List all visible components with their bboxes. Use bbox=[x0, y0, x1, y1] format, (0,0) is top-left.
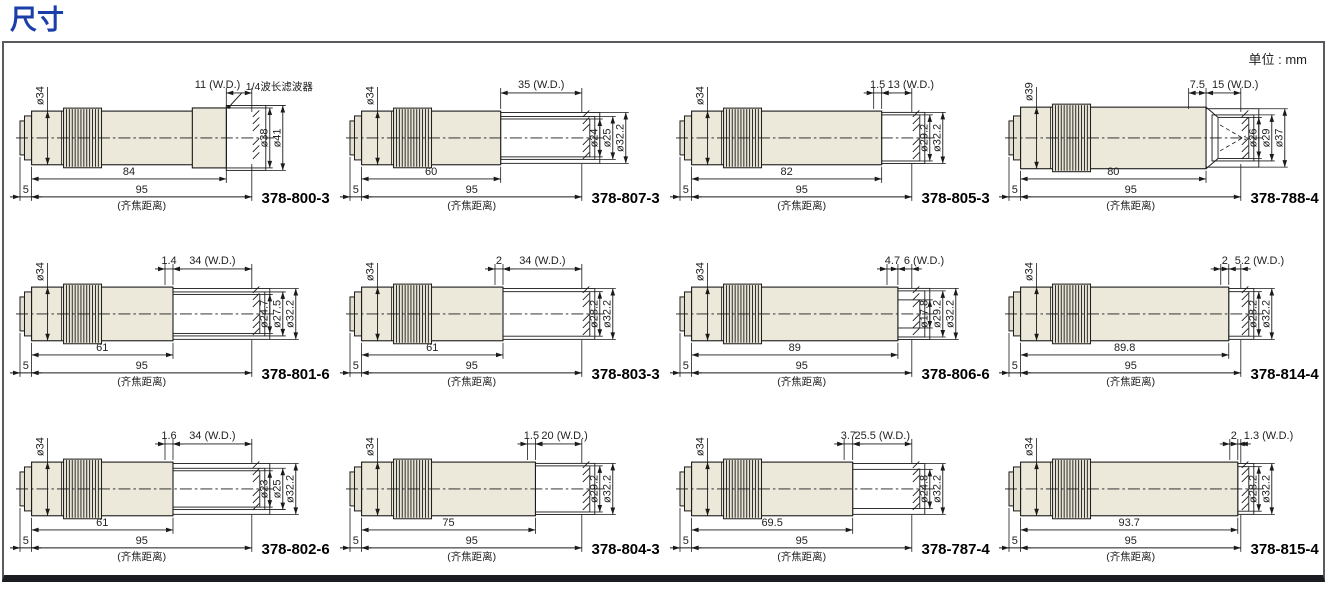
model-number: 378-806-6 bbox=[921, 365, 989, 382]
parfocal-note: (齐焦距离) bbox=[117, 550, 166, 563]
diameter-label: ø32.2 bbox=[614, 124, 626, 152]
parfocal-note: (齐焦距离) bbox=[777, 374, 826, 387]
wd-dim-label: 5.2 (W.D.) bbox=[1235, 255, 1284, 267]
objective-drawing: 1.3 (W.D.)2ø34ø28.2ø32.293.7955(齐焦距离)378… bbox=[993, 403, 1323, 579]
flange-label: 5 bbox=[1012, 359, 1018, 371]
diameter-label: ø32.2 bbox=[601, 299, 613, 327]
parfocal-label: 95 bbox=[136, 359, 148, 371]
model-number: 378-807-3 bbox=[591, 190, 659, 207]
body-length-label: 75 bbox=[442, 517, 454, 529]
objective-drawing-cell: 34 (W.D.)1.6ø34ø23ø25ø32.261955(齐焦距离)378… bbox=[4, 403, 334, 579]
objective-drawing-cell: 1.3 (W.D.)2ø34ø28.2ø32.293.7955(齐焦距离)378… bbox=[993, 403, 1323, 579]
objective-drawing: 25.5 (W.D.)3.7ø34ø24.8ø32.269.5955(齐焦距离)… bbox=[664, 403, 994, 579]
wd-dim-label: 13 (W.D.) bbox=[887, 79, 933, 91]
parfocal-note: (齐焦距离) bbox=[777, 199, 826, 212]
diameter-label: ø32.2 bbox=[931, 475, 943, 503]
drawings-grid: 11 (W.D.)1/4波长滤波器ø34ø38ø4184955(齐焦距离)378… bbox=[4, 43, 1323, 580]
diameter-label: ø32.2 bbox=[1261, 299, 1273, 327]
left-diameter-label: ø34 bbox=[364, 86, 376, 105]
parfocal-label: 95 bbox=[795, 535, 807, 547]
flange-label: 5 bbox=[682, 359, 688, 371]
objective-drawing-cell: 25.5 (W.D.)3.7ø34ø24.8ø32.269.5955(齐焦距离)… bbox=[664, 403, 994, 579]
objective-drawing: 13 (W.D.)1.5ø34ø29.2ø32.282955(齐焦距离)378-… bbox=[664, 52, 994, 228]
objective-drawing-cell: 35 (W.D.)ø34ø24ø25ø32.260955(齐焦距离)378-80… bbox=[334, 52, 664, 228]
diameter-label: ø24.7 bbox=[258, 299, 270, 327]
model-number: 378-800-3 bbox=[261, 190, 329, 207]
wd-dim-label: 34 (W.D.) bbox=[189, 430, 235, 442]
wd-dim-label: 6 (W.D.) bbox=[903, 255, 943, 267]
body-length-label: 80 bbox=[1107, 166, 1119, 178]
model-number: 378-787-4 bbox=[921, 541, 990, 558]
flange-label: 5 bbox=[682, 535, 688, 547]
offset-dim-label: 2 bbox=[496, 255, 502, 267]
parfocal-note: (齐焦距离) bbox=[117, 374, 166, 387]
left-diameter-label: ø34 bbox=[35, 86, 47, 105]
body-length-label: 89.8 bbox=[1114, 341, 1135, 353]
diameter-label: ø29.2 bbox=[931, 299, 943, 327]
objective-drawing-cell: 15 (W.D.)7.5ø39ø26ø29ø3780955(齐焦距离)378-7… bbox=[993, 52, 1323, 228]
body-length-label: 69.5 bbox=[761, 517, 782, 529]
model-number: 378-803-3 bbox=[591, 365, 659, 382]
objective-drawing: 11 (W.D.)1/4波长滤波器ø34ø38ø4184955(齐焦距离)378… bbox=[4, 52, 334, 228]
diameter-label: ø32.2 bbox=[284, 475, 296, 503]
diameter-label: ø29.2 bbox=[588, 475, 600, 503]
offset-dim-label: 1.5 bbox=[524, 430, 539, 442]
left-diameter-label: ø34 bbox=[694, 86, 706, 105]
objective-drawing-cell: 11 (W.D.)1/4波长滤波器ø34ø38ø4184955(齐焦距离)378… bbox=[4, 52, 334, 228]
parfocal-label: 95 bbox=[465, 184, 477, 196]
parfocal-note: (齐焦距离) bbox=[1106, 374, 1155, 387]
diameter-label: ø32.2 bbox=[944, 299, 956, 327]
body-length-label: 61 bbox=[96, 517, 108, 529]
objective-drawing: 6 (W.D.)4.7ø34ø17.8ø29.2ø32.289955(齐焦距离)… bbox=[664, 228, 994, 404]
parfocal-note: (齐焦距离) bbox=[777, 550, 826, 563]
diameter-label: ø32.2 bbox=[284, 299, 296, 327]
parfocal-note: (齐焦距离) bbox=[1106, 550, 1155, 563]
left-diameter-label: ø34 bbox=[35, 262, 47, 281]
model-number: 378-805-3 bbox=[921, 190, 989, 207]
objective-drawing-cell: 34 (W.D.)2ø34ø28.2ø32.261955(齐焦距离)378-80… bbox=[334, 228, 664, 404]
parfocal-label: 95 bbox=[795, 184, 807, 196]
parfocal-note: (齐焦距离) bbox=[447, 550, 496, 563]
wd-dim-label: 34 (W.D.) bbox=[519, 255, 565, 267]
flange-label: 5 bbox=[23, 359, 29, 371]
offset-dim-label: 7.5 bbox=[1190, 79, 1205, 91]
parfocal-label: 95 bbox=[136, 535, 148, 547]
dimensions-panel: 单位 : mm 11 (W.D.)1/4波长滤波器ø34ø38ø4184955(… bbox=[2, 41, 1325, 582]
diameter-label: ø29.2 bbox=[918, 124, 930, 152]
objective-drawing: 15 (W.D.)7.5ø39ø26ø29ø3780955(齐焦距离)378-7… bbox=[993, 52, 1323, 228]
parfocal-note: (齐焦距离) bbox=[447, 199, 496, 212]
wd-dim-label: 1.3 (W.D.) bbox=[1244, 430, 1293, 442]
body-length-label: 61 bbox=[426, 341, 438, 353]
quarter-wave-filter-label: 1/4波长滤波器 bbox=[246, 80, 314, 93]
diameter-label: ø28.2 bbox=[1248, 299, 1260, 327]
objective-drawing-cell: 5.2 (W.D.)2ø34ø28.2ø32.289.8955(齐焦距离)378… bbox=[993, 228, 1323, 404]
flange-label: 5 bbox=[1012, 535, 1018, 547]
model-number: 378-788-4 bbox=[1251, 190, 1320, 207]
diameter-label: ø32.2 bbox=[601, 475, 613, 503]
parfocal-label: 95 bbox=[136, 184, 148, 196]
flange-label: 5 bbox=[352, 359, 358, 371]
diameter-label: ø29 bbox=[1261, 128, 1273, 147]
body-length-label: 61 bbox=[96, 341, 108, 353]
diameter-label: ø28.2 bbox=[588, 299, 600, 327]
flange-label: 5 bbox=[682, 184, 688, 196]
parfocal-note: (齐焦距离) bbox=[117, 199, 166, 212]
model-number: 378-804-3 bbox=[591, 541, 659, 558]
model-number: 378-815-4 bbox=[1251, 541, 1320, 558]
diameter-label: ø23 bbox=[258, 480, 270, 499]
diameter-label: ø32.2 bbox=[1261, 475, 1273, 503]
wd-dim-label: 11 (W.D.) bbox=[195, 79, 241, 91]
model-number: 378-801-6 bbox=[261, 365, 329, 382]
page-title: 尺寸 bbox=[10, 6, 1327, 36]
offset-dim-label: 2 bbox=[1231, 430, 1237, 442]
diameter-label: ø32.2 bbox=[931, 124, 943, 152]
objective-drawing-cell: 34 (W.D.)1.4ø34ø24.7ø27.5ø32.261955(齐焦距离… bbox=[4, 228, 334, 404]
diameter-label: ø28.2 bbox=[1248, 475, 1260, 503]
parfocal-label: 95 bbox=[1125, 359, 1137, 371]
offset-dim-label: 1.5 bbox=[870, 79, 885, 91]
diameter-label: ø25 bbox=[271, 480, 283, 499]
objective-drawing: 20 (W.D.)1.5ø34ø29.2ø32.275955(齐焦距离)378-… bbox=[334, 403, 664, 579]
left-diameter-label: ø34 bbox=[694, 438, 706, 457]
left-diameter-label: ø34 bbox=[364, 262, 376, 281]
objective-drawing-cell: 13 (W.D.)1.5ø34ø29.2ø32.282955(齐焦距离)378-… bbox=[664, 52, 994, 228]
wd-dim-label: 20 (W.D.) bbox=[541, 430, 587, 442]
body-length-label: 60 bbox=[425, 166, 437, 178]
offset-dim-label: 2 bbox=[1222, 255, 1228, 267]
offset-dim-label: 1.6 bbox=[161, 430, 176, 442]
objective-drawing: 35 (W.D.)ø34ø24ø25ø32.260955(齐焦距离)378-80… bbox=[334, 52, 664, 228]
body-length-label: 89 bbox=[788, 341, 800, 353]
objective-drawing: 34 (W.D.)2ø34ø28.2ø32.261955(齐焦距离)378-80… bbox=[334, 228, 664, 404]
wd-dim-label: 34 (W.D.) bbox=[189, 255, 235, 267]
diameter-label: ø27.5 bbox=[271, 299, 283, 327]
parfocal-label: 95 bbox=[465, 535, 477, 547]
left-diameter-label: ø34 bbox=[1024, 262, 1036, 281]
flange-label: 5 bbox=[352, 535, 358, 547]
left-diameter-label: ø39 bbox=[1024, 82, 1036, 101]
flange-label: 5 bbox=[23, 535, 29, 547]
left-diameter-label: ø34 bbox=[694, 262, 706, 281]
diameter-label: ø24 bbox=[588, 128, 600, 147]
diameter-label: ø37 bbox=[1274, 128, 1286, 147]
body-length-label: 93.7 bbox=[1119, 517, 1140, 529]
parfocal-label: 95 bbox=[795, 359, 807, 371]
offset-dim-label: 4.7 bbox=[884, 255, 899, 267]
parfocal-note: (齐焦距离) bbox=[1106, 199, 1155, 212]
diameter-label: ø17.8 bbox=[918, 299, 930, 327]
flange-label: 5 bbox=[352, 184, 358, 196]
parfocal-label: 95 bbox=[1125, 535, 1137, 547]
left-diameter-label: ø34 bbox=[364, 438, 376, 457]
wd-dim-label: 15 (W.D.) bbox=[1212, 79, 1258, 91]
parfocal-note: (齐焦距离) bbox=[447, 374, 496, 387]
model-number: 378-814-4 bbox=[1251, 365, 1320, 382]
diameter-label: ø41 bbox=[271, 128, 283, 147]
flange-label: 5 bbox=[1012, 184, 1018, 196]
wd-dim-label: 35 (W.D.) bbox=[518, 79, 564, 91]
left-diameter-label: ø34 bbox=[1024, 438, 1036, 457]
diameter-label: ø24.8 bbox=[918, 475, 930, 503]
wd-dim-label: 25.5 (W.D.) bbox=[854, 430, 910, 442]
flange-label: 5 bbox=[23, 184, 29, 196]
objective-drawing: 34 (W.D.)1.6ø34ø23ø25ø32.261955(齐焦距离)378… bbox=[4, 403, 334, 579]
parfocal-label: 95 bbox=[465, 359, 477, 371]
offset-dim-label: 1.4 bbox=[161, 255, 176, 267]
diameter-label: ø25 bbox=[601, 128, 613, 147]
model-number: 378-802-6 bbox=[261, 541, 329, 558]
objective-drawing-cell: 20 (W.D.)1.5ø34ø29.2ø32.275955(齐焦距离)378-… bbox=[334, 403, 664, 579]
parfocal-label: 95 bbox=[1125, 184, 1137, 196]
objective-drawing: 34 (W.D.)1.4ø34ø24.7ø27.5ø32.261955(齐焦距离… bbox=[4, 228, 334, 404]
objective-drawing-cell: 6 (W.D.)4.7ø34ø17.8ø29.2ø32.289955(齐焦距离)… bbox=[664, 228, 994, 404]
body-length-label: 84 bbox=[123, 166, 135, 178]
diameter-label: ø26 bbox=[1248, 128, 1260, 147]
body-length-label: 82 bbox=[780, 166, 792, 178]
objective-drawing: 5.2 (W.D.)2ø34ø28.2ø32.289.8955(齐焦距离)378… bbox=[993, 228, 1323, 404]
offset-dim-label: 3.7 bbox=[840, 430, 855, 442]
left-diameter-label: ø34 bbox=[35, 438, 47, 457]
diameter-label: ø38 bbox=[258, 128, 270, 147]
unit-note: 单位 : mm bbox=[1249, 49, 1308, 68]
